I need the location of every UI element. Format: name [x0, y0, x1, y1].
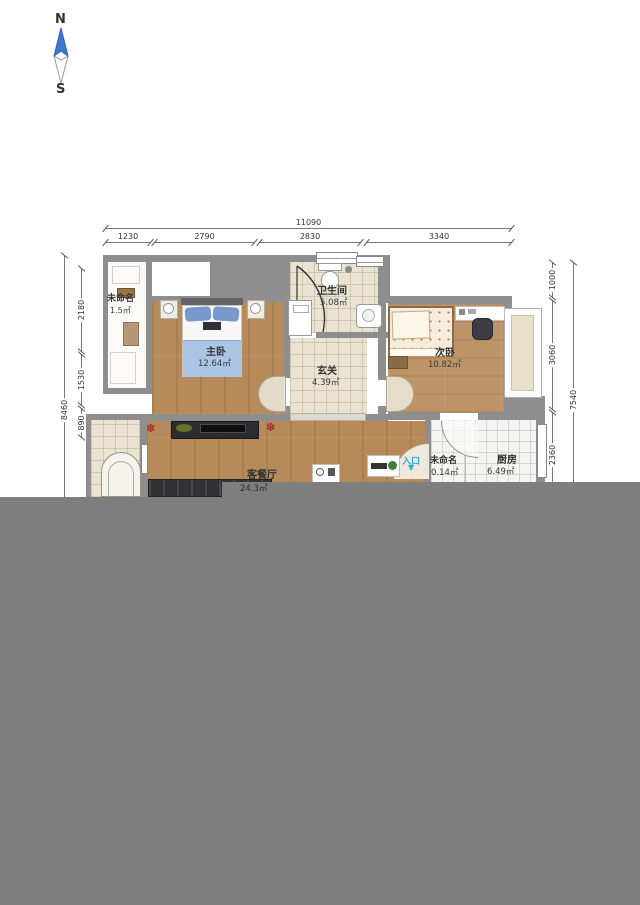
wall — [86, 414, 146, 420]
room-area-kitchen: 6.49㎡ — [487, 468, 514, 477]
wall — [103, 388, 152, 394]
bed-bench — [388, 356, 408, 369]
flower-icon: ✽ — [146, 422, 155, 435]
compass-needle-icon — [49, 27, 73, 85]
room-area-hallway: 4.39㎡ — [312, 379, 339, 388]
wall — [478, 412, 545, 420]
tv-icon — [200, 424, 246, 433]
compass-north-label: N — [55, 12, 66, 27]
sink-basin-icon — [362, 309, 375, 322]
bed-headboard — [181, 298, 243, 305]
room-area-bathroom: 5.08㎡ — [320, 299, 347, 308]
shoe-cabinet-item — [371, 463, 387, 469]
wall-block — [210, 255, 286, 302]
gray-overlay — [222, 482, 640, 498]
wall — [145, 414, 290, 421]
room-area-living-dining: 24.3㎡ — [240, 485, 267, 494]
chair-icon — [472, 318, 493, 340]
dim-segment: 2790 — [154, 226, 255, 243]
room-area-master-bedroom: 12.64㎡ — [198, 360, 231, 369]
room-area-closet: 1.5㎡ — [110, 307, 131, 316]
dim-segment: 2180 — [81, 268, 82, 352]
desk-item — [468, 309, 476, 314]
room-area-second-bedroom: 10.82㎡ — [428, 361, 461, 370]
lamp-icon — [250, 303, 261, 314]
room-label-hallway: 玄关 — [317, 366, 337, 377]
room-label-second-bedroom: 次卧 — [435, 348, 455, 359]
flower-icon: ✽ — [266, 421, 275, 434]
dim-segment: 890 — [81, 408, 82, 438]
dim-segment: 2830 — [259, 226, 361, 243]
room-label-kitchen: 厨房 — [497, 455, 517, 466]
wall — [103, 255, 215, 262]
washer-detail — [293, 305, 309, 313]
dim-segment: 1530 — [81, 354, 82, 406]
bed-tray — [203, 322, 221, 330]
wall — [86, 414, 91, 497]
wall — [146, 262, 152, 392]
wall — [103, 262, 108, 392]
room-label-bathroom: 卫生间 — [317, 286, 347, 297]
bay-window-sill — [511, 315, 534, 391]
entrance-arrow-icon: ▼ — [408, 463, 414, 472]
dim-segment: 3060 — [552, 300, 553, 410]
closet-cabinet-icon — [123, 322, 139, 346]
pillow — [213, 306, 240, 322]
side-table-item — [328, 468, 335, 476]
wall — [388, 296, 512, 304]
lamp-icon — [163, 303, 174, 314]
desk-item — [459, 309, 465, 315]
pillow — [392, 310, 431, 339]
room-label-living-dining: 客餐厅 — [247, 470, 277, 481]
wall — [366, 414, 388, 421]
room-label-small-unnamed: 未命名 — [430, 457, 457, 467]
floor-drain-icon — [345, 266, 352, 273]
wall — [388, 412, 440, 420]
room-label-closet: 未命名 — [107, 295, 134, 305]
dim-segment: 3340 — [366, 226, 512, 243]
pillow — [185, 306, 212, 322]
room-area-small-unnamed: 0.14㎡ — [431, 469, 458, 478]
compass-south-label: S — [56, 82, 65, 97]
closet-hanger-icon — [112, 266, 140, 284]
plant-icon — [176, 424, 192, 432]
dim-segment: 1230 — [105, 226, 151, 243]
side-table-item — [316, 468, 324, 476]
door-arc — [258, 376, 286, 412]
gray-overlay — [0, 497, 640, 905]
dim-segment: 1000 — [552, 262, 553, 298]
threshold — [290, 413, 366, 421]
closet-sketch — [110, 352, 136, 384]
plant-icon — [388, 461, 397, 470]
window — [141, 444, 148, 474]
basin-arch-inner — [108, 461, 134, 497]
floor-plan: N S 11090 1230 2790 2830 3340 8460 2180 … — [0, 0, 640, 905]
window — [537, 424, 547, 478]
door-panel — [356, 256, 384, 267]
room-label-master-bedroom: 主卧 — [206, 347, 226, 358]
toilet-tank-icon — [318, 263, 342, 271]
